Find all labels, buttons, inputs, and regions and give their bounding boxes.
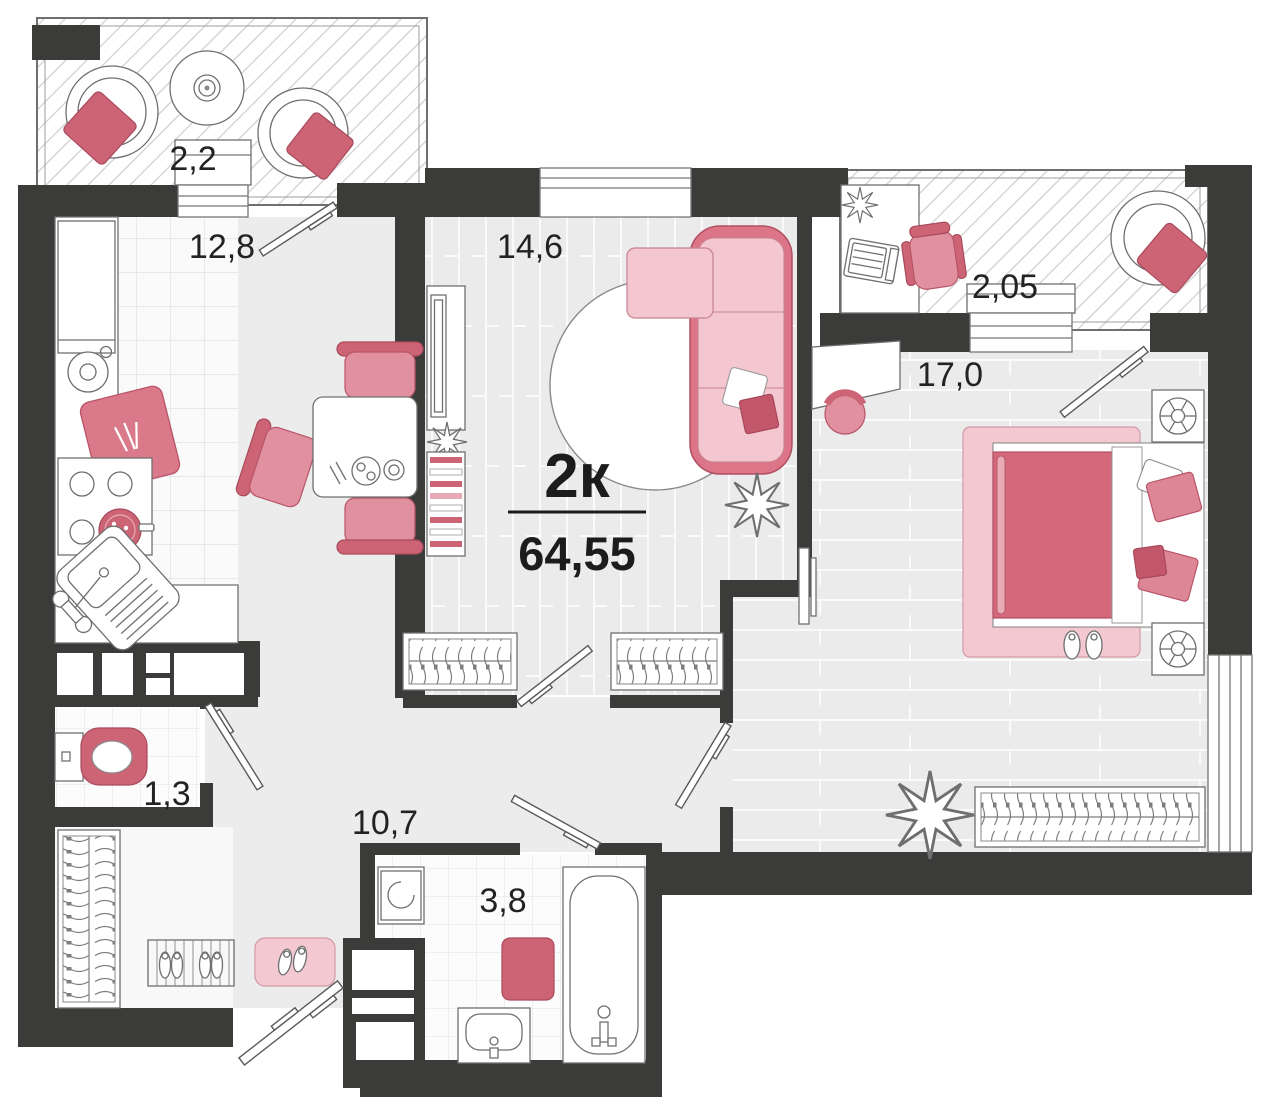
toilet bbox=[55, 728, 147, 785]
plant-icon bbox=[886, 771, 974, 859]
sofa-pillow bbox=[739, 394, 779, 434]
shoe-rack bbox=[148, 940, 234, 986]
bathtub bbox=[563, 867, 645, 1063]
bedside-lamp-icon bbox=[1160, 631, 1196, 667]
room-label: 2,05 bbox=[972, 268, 1038, 306]
nightstand bbox=[1152, 390, 1204, 442]
wardrobe-hangers bbox=[611, 633, 723, 690]
tv bbox=[431, 295, 446, 417]
tv-console bbox=[427, 286, 465, 430]
room-label: 1,3 bbox=[143, 775, 190, 813]
dining-chair bbox=[337, 342, 423, 398]
room-label: 3,8 bbox=[479, 882, 526, 920]
bedside-lamp-icon bbox=[1160, 398, 1196, 434]
balcony-table bbox=[170, 51, 244, 125]
room-label: 2,2 bbox=[169, 140, 216, 178]
laptop bbox=[843, 238, 899, 284]
room-label: 17,0 bbox=[917, 356, 983, 394]
washing-machine bbox=[378, 867, 424, 924]
bathroom-sink bbox=[458, 1008, 530, 1063]
total-area-label: 64,55 bbox=[518, 527, 636, 580]
bookshelf bbox=[427, 452, 465, 556]
plant-icon bbox=[842, 187, 878, 223]
unit-type-label: 2к bbox=[544, 442, 610, 511]
sofa-chaise bbox=[627, 248, 713, 318]
room-label: 10,7 bbox=[352, 804, 418, 842]
wardrobe-hangers bbox=[403, 633, 517, 690]
desk-chair bbox=[825, 393, 865, 434]
room-label: 12,8 bbox=[189, 228, 255, 266]
blanket bbox=[993, 452, 1112, 618]
bath-mat bbox=[502, 938, 554, 1000]
room-label: 14,6 bbox=[497, 228, 563, 266]
living-room-window bbox=[540, 168, 691, 217]
bed-pillow bbox=[1133, 545, 1167, 579]
bedroom-side-window bbox=[1208, 655, 1252, 852]
floor-plan: 2,2 12,8 14,6 2,05 17,0 1,3 10,7 3,8 2к … bbox=[0, 0, 1280, 1111]
bedroom-wardrobe bbox=[975, 787, 1205, 847]
hall-wardrobe bbox=[58, 830, 120, 1008]
plant-icon bbox=[725, 473, 789, 537]
wall-tv bbox=[799, 548, 816, 624]
nightstand bbox=[1152, 623, 1204, 675]
fridge bbox=[58, 221, 115, 353]
dining-chair bbox=[337, 498, 423, 554]
floor-plan-drawing: 2,2 12,8 14,6 2,05 17,0 1,3 10,7 3,8 2к … bbox=[0, 0, 1280, 1111]
entry-rug bbox=[255, 938, 335, 986]
